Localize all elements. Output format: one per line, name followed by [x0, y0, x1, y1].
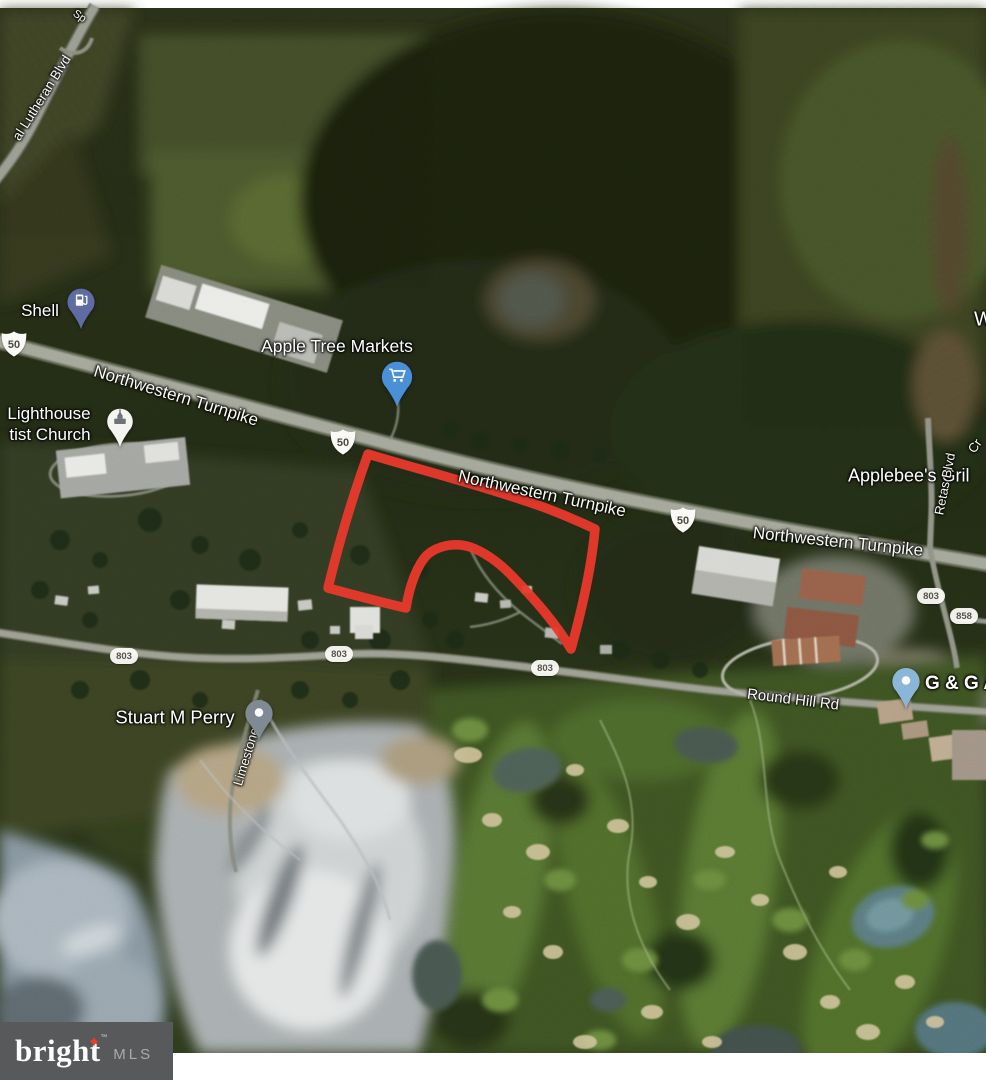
satellite-terrain	[0, 0, 986, 1053]
brightmls-logo-mls: MLS	[113, 1046, 153, 1063]
route-803-shield-3: 803	[531, 660, 559, 676]
route-803-shield-4: 803	[917, 588, 945, 604]
church-pin	[105, 407, 135, 448]
apple-tree-markets-pin	[379, 360, 415, 408]
poi-label-w-fragment: W	[974, 310, 986, 331]
grain-overlay	[0, 8, 986, 1053]
g-and-g-pin	[890, 666, 922, 710]
route-858-shield: 858	[950, 608, 978, 624]
star-icon: ✦	[88, 1033, 101, 1051]
us50-shield-left-number: 50	[8, 337, 20, 351]
us50-shield-center-number: 50	[337, 435, 349, 449]
poi-label-g-and-g: G & G A	[925, 674, 986, 694]
trademark-symbol: ™	[100, 1034, 107, 1041]
poi-label-lighthouse-line2: tist Church	[7, 424, 90, 445]
us50-shield-center: 50	[329, 427, 357, 457]
poi-label-lighthouse-line1: Lighthouse	[7, 403, 90, 424]
satellite-map-image[interactable]: Sp al Lutheran Blvd Shell Northwestern T…	[0, 0, 986, 1053]
screenshot-root: { "logo": { "brand": "bright", "tm": "™"…	[0, 0, 986, 1080]
stuart-m-perry-pin	[243, 698, 275, 742]
shell-station-pin	[65, 287, 97, 330]
us50-shield-right: 50	[669, 505, 697, 535]
poi-label-stuart-m-perry: Stuart M Perry	[115, 707, 234, 726]
dot-icon	[255, 708, 263, 716]
us50-shield-left: 50	[0, 329, 28, 359]
poi-label-apple-tree-markets: Apple Tree Markets	[261, 337, 413, 355]
route-803-shield-1: 803	[110, 648, 138, 664]
route-803-shield-2: 803	[325, 646, 353, 662]
us50-shield-right-number: 50	[677, 513, 689, 527]
poi-label-lighthouse-church: Lighthouse tist Church	[7, 403, 90, 445]
brightmls-logo: bright ✦ ™ MLS	[0, 1022, 173, 1080]
poi-label-shell: Shell	[21, 302, 59, 320]
dot-icon	[902, 676, 910, 684]
